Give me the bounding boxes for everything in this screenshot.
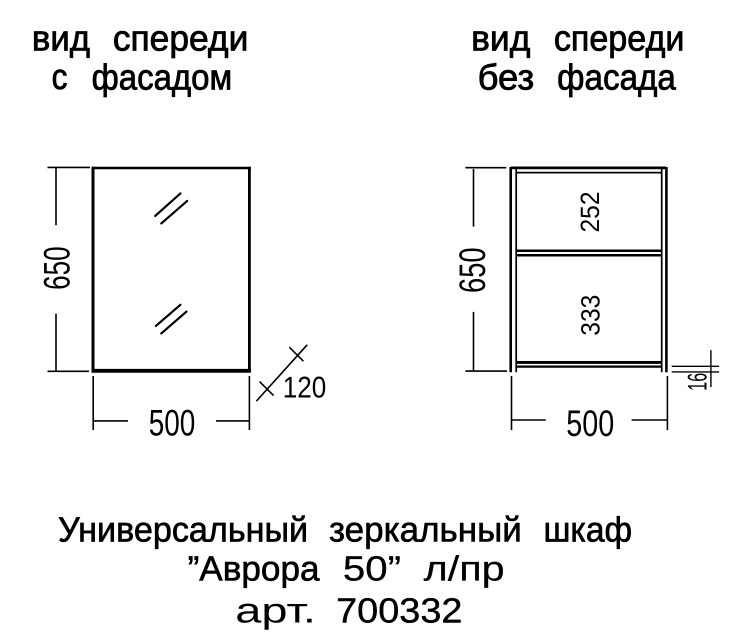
svg-text:500: 500 bbox=[149, 403, 196, 444]
svg-text:л/пр: л/пр bbox=[424, 550, 505, 589]
svg-text:”Аврора: ”Аврора bbox=[188, 550, 320, 589]
svg-text:16: 16 bbox=[682, 373, 712, 391]
svg-text:650: 650 bbox=[452, 247, 493, 293]
svg-text:без: без bbox=[478, 57, 535, 98]
svg-text:фасада: фасада bbox=[557, 57, 677, 98]
svg-text:вид: вид bbox=[32, 18, 90, 59]
svg-text:спереди: спереди bbox=[554, 18, 685, 59]
svg-text:650: 650 bbox=[36, 246, 77, 290]
svg-text:333: 333 bbox=[575, 295, 605, 336]
svg-text:спереди: спереди bbox=[113, 18, 249, 59]
svg-text:зеркальный: зеркальный bbox=[329, 511, 522, 550]
svg-text:Универсальный: Универсальный bbox=[58, 511, 308, 550]
svg-text:шкаф: шкаф bbox=[543, 511, 632, 550]
svg-text:арт.: арт. bbox=[235, 592, 316, 631]
svg-text:252: 252 bbox=[575, 192, 605, 233]
svg-text:700332: 700332 bbox=[336, 592, 462, 631]
svg-text:с: с bbox=[52, 56, 68, 97]
svg-text:120: 120 bbox=[283, 371, 327, 404]
svg-text:50”: 50” bbox=[343, 550, 401, 589]
svg-text:500: 500 bbox=[566, 403, 614, 444]
svg-text:вид: вид bbox=[471, 18, 530, 59]
svg-text:фасадом: фасадом bbox=[92, 57, 233, 98]
